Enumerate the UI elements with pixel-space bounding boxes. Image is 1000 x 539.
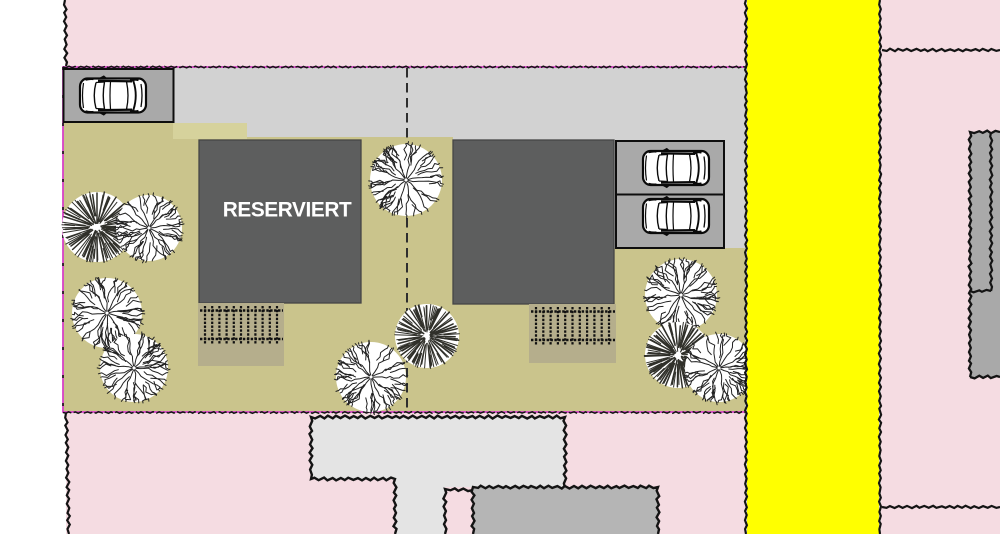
svg-text:RESERVIERT: RESERVIERT xyxy=(223,199,352,222)
